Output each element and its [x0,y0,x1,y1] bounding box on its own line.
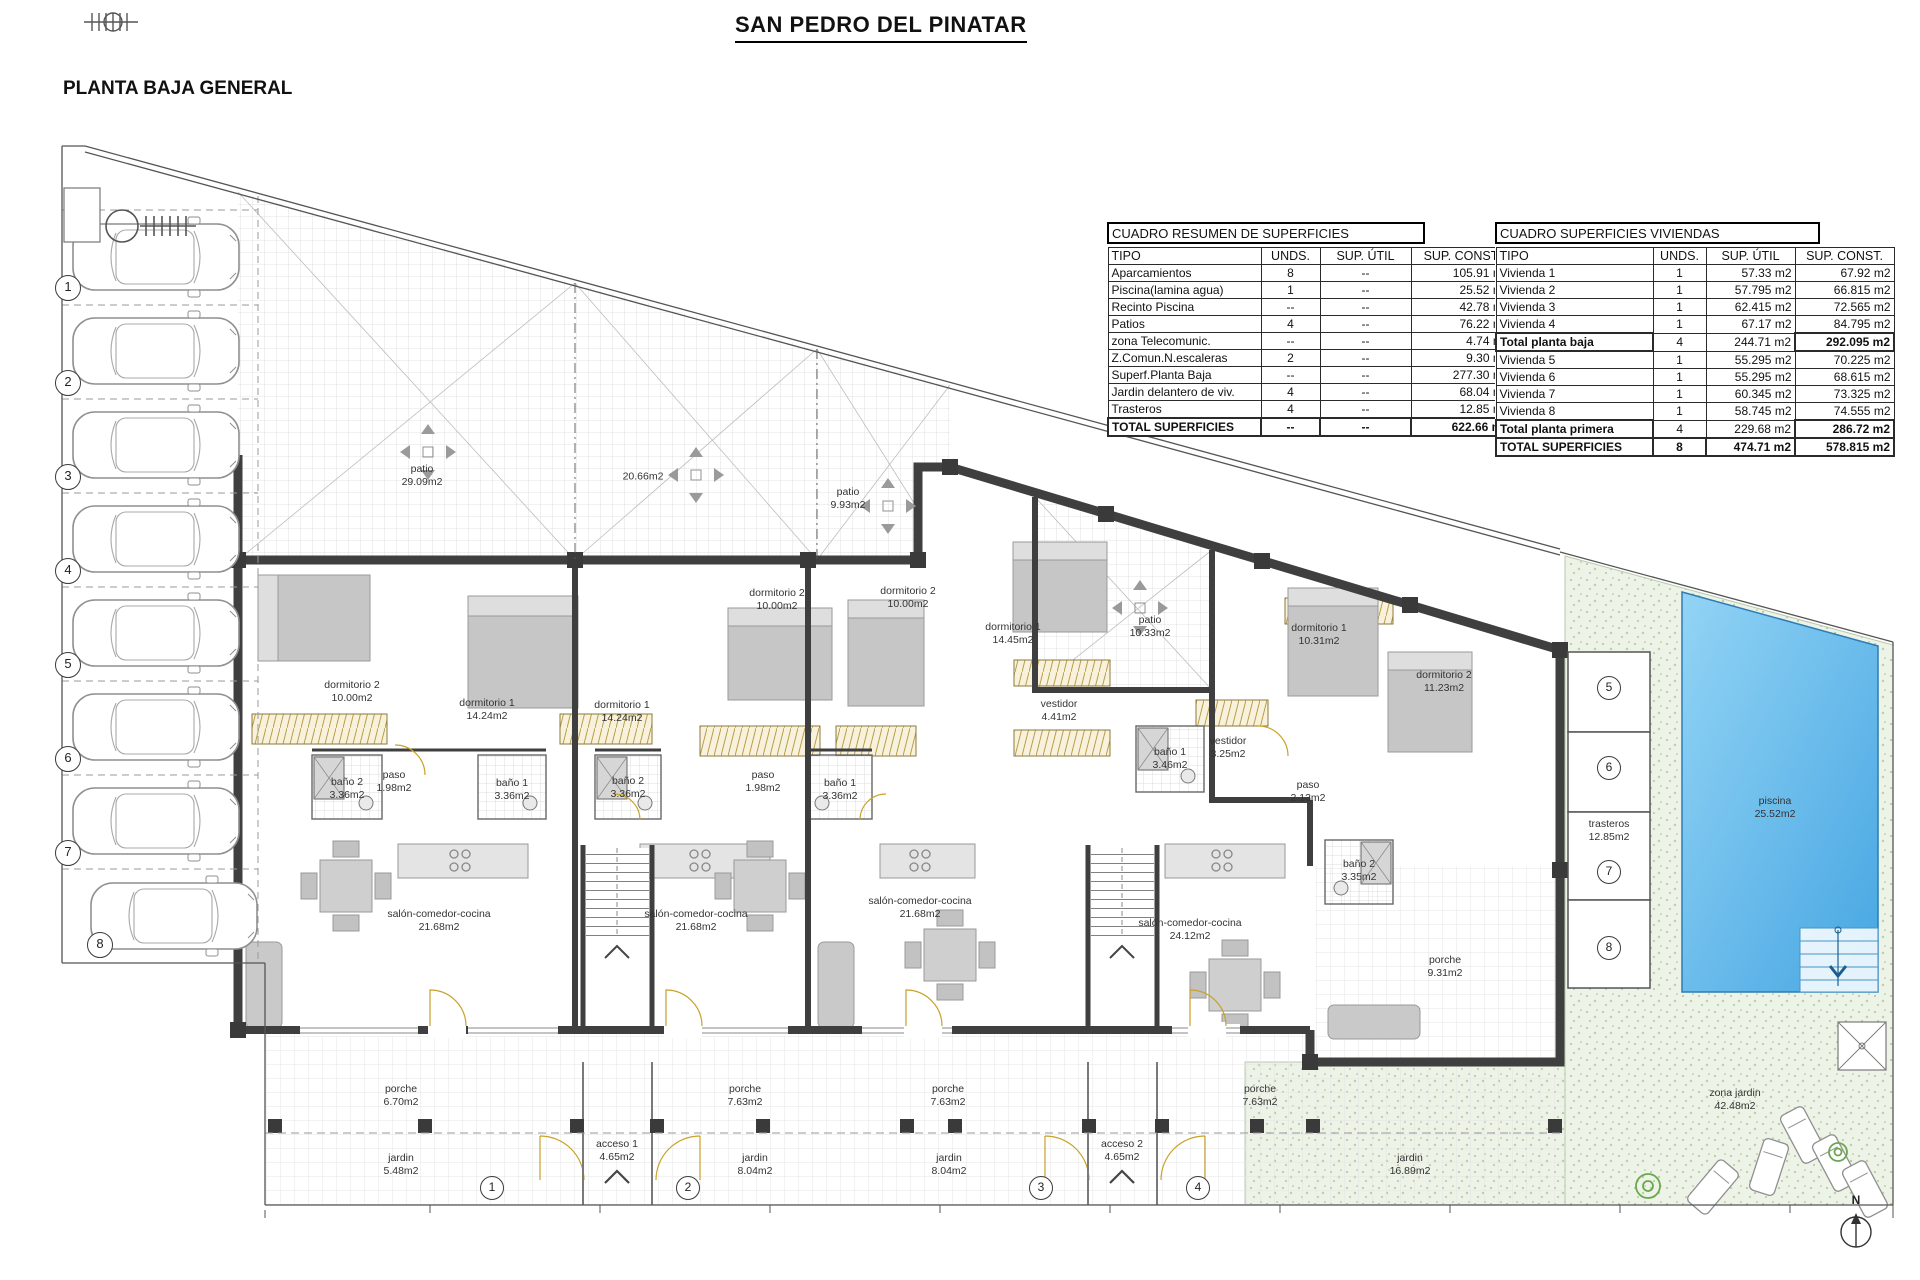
room-label: porche7.63m2 [727,1083,762,1109]
room-label: jardin8.04m2 [931,1152,966,1178]
parking-space-number: 7 [55,840,81,866]
room-label: porche7.63m2 [1242,1083,1277,1109]
parking-space-number: 5 [55,652,81,678]
room-label: baño 13.36m2 [494,777,529,803]
table-total-row: TOTAL SUPERFICIES----622.66 m2 [1108,418,1513,436]
dwellings-table-title: CUADRO SUPERFICIES VIVIENDAS [1495,222,1820,244]
room-label: zona jardin42.48m2 [1709,1087,1760,1113]
room-label: dormitorio 114.24m2 [594,699,649,725]
room-label: dormitorio 210.00m2 [880,585,935,611]
access-number: 1 [480,1176,504,1200]
parking-space-number: 6 [55,746,81,772]
summary-table: TIPO UNDS. SUP. ÚTIL SUP. CONST. Aparcam… [1107,247,1514,437]
table-row: Vivienda 4167.17 m284.795 m2 [1496,316,1894,334]
table-row: Vivienda 6155.295 m268.615 m2 [1496,369,1894,386]
parking-space-number: 4 [55,558,81,584]
table-total-row: TOTAL SUPERFICIES8474.71 m2578.815 m2 [1496,438,1894,456]
table-row: Aparcamientos8--105.91 m2 [1108,265,1513,282]
room-label: acceso 24.65m2 [1101,1138,1143,1164]
room-label: 20.66m2 [623,470,664,483]
parking-space-number: 8 [87,932,113,958]
room-label: dormitorio 211.23m2 [1416,669,1471,695]
room-label: dormitorio 210.00m2 [324,679,379,705]
room-label: jardin5.48m2 [383,1152,418,1178]
parking-space-number: 3 [55,464,81,490]
table-row: Superf.Planta Baja----277.30 m2 [1108,367,1513,384]
telecom-room [64,188,100,242]
room-label: baño 23.36m2 [610,775,645,801]
dwellings-table: TIPO UNDS. SUP. ÚTIL SUP. CONST. Viviend… [1495,247,1895,457]
room-label: patio29.09m2 [402,463,443,489]
room-label: vestidor3.25m2 [1210,735,1247,761]
table-row: Vivienda 7160.345 m273.325 m2 [1496,386,1894,403]
floor-plan-page: SAN PEDRO DEL PINATAR PLANTA BAJA GENERA… [0,0,1920,1280]
room-label: paso2.13m2 [1290,779,1325,805]
parking-space-number: 1 [55,275,81,301]
table-row: Trasteros4--12.85 m2 [1108,401,1513,419]
room-label: porche9.31m2 [1427,954,1462,980]
room-label: dormitorio 210.00m2 [749,587,804,613]
room-label: baño 23.36m2 [329,776,364,802]
parking-area [62,13,258,963]
table-row: Recinto Piscina----42.78 m2 [1108,299,1513,316]
room-label: salón-comedor-cocina21.68m2 [387,908,490,934]
table-row: zona Telecomunic.----4.74 m2 [1108,333,1513,350]
page-title: SAN PEDRO DEL PINATAR [735,12,1027,43]
table-header-row: TIPO UNDS. SUP. ÚTIL SUP. CONST. [1108,248,1513,265]
room-label: baño 13.46m2 [1152,746,1187,772]
room-label: baño 13.36m2 [822,777,857,803]
north-label: N [1852,1193,1861,1207]
storage-number: 6 [1597,756,1621,780]
table-row: Patios4--76.22 m2 [1108,316,1513,333]
table-row: Vivienda 5155.295 m270.225 m2 [1496,351,1894,369]
room-label: vestidor4.41m2 [1041,698,1078,724]
room-label: jardin16.89m2 [1390,1152,1431,1178]
room-label: salón-comedor-cocina21.68m2 [868,895,971,921]
room-label: trasteros12.85m2 [1589,818,1630,844]
storage-number: 5 [1597,676,1621,700]
room-label: salón-comedor-cocina24.12m2 [1138,917,1241,943]
storage-number: 8 [1597,936,1621,960]
room-label: dormitorio 110.31m2 [1291,622,1346,648]
room-label: salón-comedor-cocina21.68m2 [644,908,747,934]
room-label: acceso 14.65m2 [596,1138,638,1164]
table-row: Vivienda 2157.795 m266.815 m2 [1496,282,1894,299]
pool-stairs-icon [1800,927,1878,992]
access-number: 4 [1186,1176,1210,1200]
room-label: porche7.63m2 [930,1083,965,1109]
swimming-pool [1682,592,1878,992]
plan-subtitle: PLANTA BAJA GENERAL [63,78,292,100]
storage-number: 7 [1597,860,1621,884]
room-label: baño 23.35m2 [1341,858,1376,884]
room-label: jardin8.04m2 [737,1152,772,1178]
room-label: piscina25.52m2 [1755,795,1796,821]
table-row: Z.Comun.N.escaleras2--9.30 m2 [1108,350,1513,367]
room-label: porche6.70m2 [383,1083,418,1109]
table-subtotal-row: Total planta primera4229.68 m2286.72 m2 [1496,420,1894,438]
gate-icon-top [84,13,138,31]
room-label: paso1.98m2 [745,769,780,795]
table-row: Vivienda 3162.415 m272.565 m2 [1496,299,1894,316]
access-number: 3 [1029,1176,1053,1200]
table-header-row: TIPO UNDS. SUP. ÚTIL SUP. CONST. [1496,248,1894,265]
table-subtotal-row: Total planta baja4244.71 m2292.095 m2 [1496,333,1894,351]
room-label: patio9.93m2 [830,486,865,512]
table-row: Vivienda 8158.745 m274.555 m2 [1496,403,1894,421]
table-row: Piscina(lamina agua)1--25.52 m2 [1108,282,1513,299]
room-label: paso1.98m2 [376,769,411,795]
room-label: dormitorio 114.24m2 [459,697,514,723]
north-compass-icon [1841,1213,1871,1247]
parasol-icon [1838,1022,1886,1070]
parking-space-number: 2 [55,370,81,396]
table-row: Jardin delantero de viv.4--68.04 m2 [1108,384,1513,401]
table-row: Vivienda 1157.33 m267.92 m2 [1496,265,1894,282]
room-label: dormitorio 114.45m2 [985,621,1040,647]
summary-table-title: CUADRO RESUMEN DE SUPERFICIES [1107,222,1425,244]
room-label: patio10.33m2 [1130,614,1171,640]
access-number: 2 [676,1176,700,1200]
